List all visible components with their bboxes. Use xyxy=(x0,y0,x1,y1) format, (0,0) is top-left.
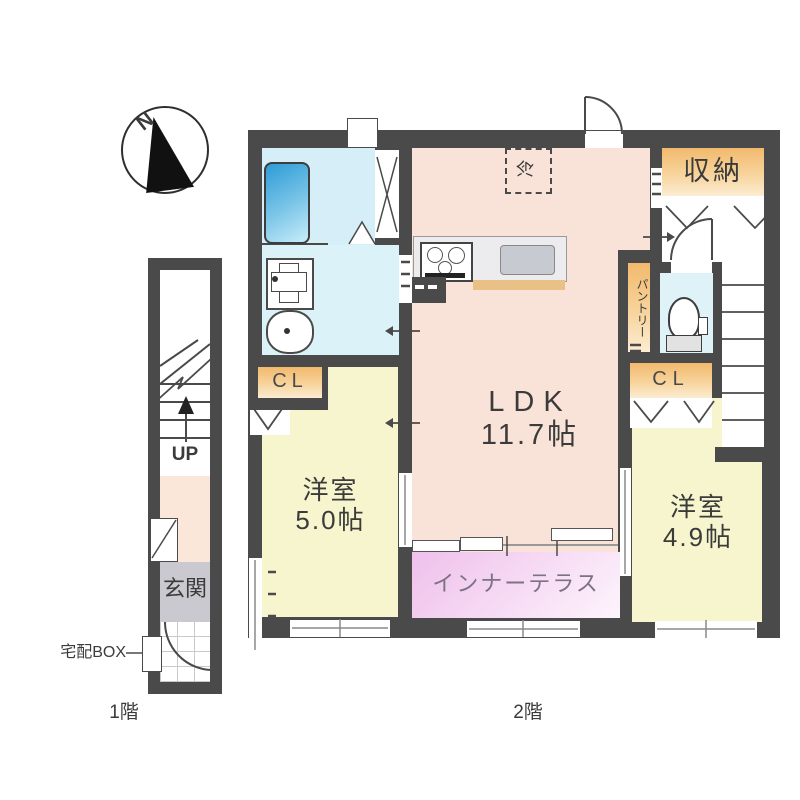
washbasin xyxy=(266,310,314,354)
toilet-bowl xyxy=(668,297,700,339)
room-left-label: 洋室 5.0帖 xyxy=(258,476,403,536)
washer-drain xyxy=(272,276,278,282)
ldk-floor xyxy=(412,148,650,552)
terrace-door-leaf-open xyxy=(551,528,613,541)
room-left-south-window xyxy=(290,620,390,637)
toilet-tank xyxy=(666,335,702,352)
washer-pan-plus-h xyxy=(271,272,307,292)
floor2-caption: 2階 xyxy=(498,702,558,724)
kitchen-sink xyxy=(500,245,555,275)
refrigerator-label: 冷 xyxy=(516,147,537,190)
closet-left-doors xyxy=(250,410,290,435)
top-wall-window xyxy=(347,118,378,148)
compass: N xyxy=(121,106,211,196)
terrace-door-leaf xyxy=(412,540,460,552)
entrance-label: 玄関 xyxy=(160,576,210,601)
room-right-size: 4.9帖 xyxy=(628,523,768,553)
room-right-south-window xyxy=(655,621,757,638)
terrace-south-window xyxy=(467,621,580,637)
toilet-handle xyxy=(698,317,708,335)
room-left-name: 洋室 xyxy=(258,476,403,506)
ldk-label: LDK 11.7帖 xyxy=(430,386,630,453)
bathroom-door-opening xyxy=(375,150,399,238)
delivery-box xyxy=(142,636,162,672)
ldk-size: 11.7帖 xyxy=(430,419,630,452)
terrace-door-leaf xyxy=(460,537,503,551)
stairs2-floor xyxy=(722,257,764,447)
entry-door-opening xyxy=(585,131,623,148)
closet-left-label: CL xyxy=(258,370,322,393)
hall-door-opening xyxy=(671,260,712,274)
room-left-west-window xyxy=(249,558,262,652)
washroom-sliding-opening xyxy=(399,255,412,303)
storage-room-floor xyxy=(662,196,764,262)
stove xyxy=(420,242,473,282)
closet-right-label: CL xyxy=(630,368,712,391)
toilet xyxy=(666,297,708,355)
washbasin-drain xyxy=(284,328,290,334)
room-right-label: 洋室 4.9帖 xyxy=(628,493,768,553)
floor1-entry-tile xyxy=(160,622,210,682)
ldk-name: LDK xyxy=(430,386,630,419)
pantry-label: パントリー xyxy=(630,266,648,350)
shoe-cabinet xyxy=(150,518,178,562)
counter-edge xyxy=(473,280,565,290)
up-label: UP xyxy=(160,444,210,466)
kitchen-stub-wall xyxy=(412,277,446,303)
closet-right-doors xyxy=(630,398,712,428)
stairs2-bottom-wall xyxy=(715,447,764,462)
storage-wall-opening xyxy=(651,168,662,208)
room-left-size: 5.0帖 xyxy=(258,506,403,536)
bathtub xyxy=(264,162,310,244)
terrace-label: インナーテラス xyxy=(418,571,614,596)
burner xyxy=(427,247,443,263)
burner xyxy=(448,247,465,264)
room-right-name: 洋室 xyxy=(628,493,768,523)
storage-label: 収納 xyxy=(662,156,764,187)
floor1-caption: 1階 xyxy=(94,702,154,724)
washing-machine-pan xyxy=(266,258,314,310)
floor-plan-canvas: N xyxy=(0,0,800,800)
delivery-box-label: 宅配BOX xyxy=(30,644,126,662)
